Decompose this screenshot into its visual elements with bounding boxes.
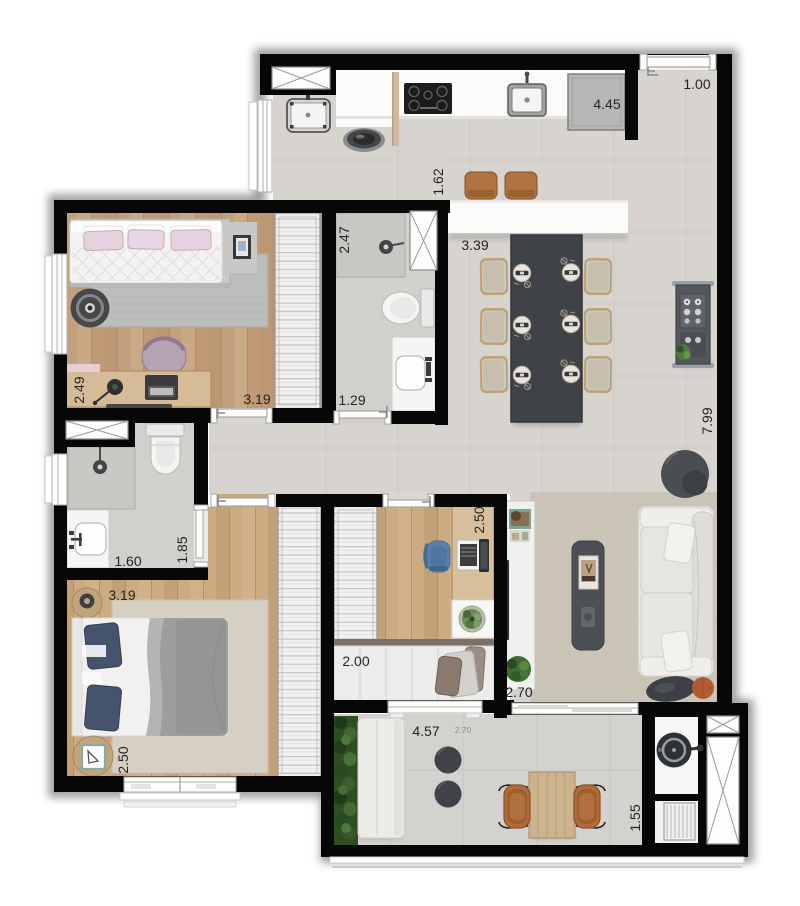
- svg-text:2.50: 2.50: [471, 506, 487, 533]
- svg-text:7.99: 7.99: [699, 407, 715, 434]
- svg-text:1.62: 1.62: [430, 168, 446, 195]
- svg-text:2.47: 2.47: [336, 226, 352, 253]
- svg-text:4.45: 4.45: [593, 96, 620, 112]
- svg-text:3.19: 3.19: [108, 587, 135, 603]
- svg-text:2.50: 2.50: [115, 746, 131, 773]
- svg-text:2.49: 2.49: [71, 376, 87, 403]
- svg-text:2.70: 2.70: [505, 684, 532, 700]
- svg-text:2.70: 2.70: [455, 725, 472, 735]
- svg-text:3.39: 3.39: [461, 237, 488, 253]
- svg-text:1.55: 1.55: [627, 804, 643, 831]
- svg-text:1.85: 1.85: [174, 536, 190, 563]
- svg-text:3.19: 3.19: [243, 391, 270, 407]
- svg-text:4.57: 4.57: [412, 723, 439, 739]
- svg-text:1.00: 1.00: [683, 76, 710, 92]
- svg-text:1.29: 1.29: [338, 392, 365, 408]
- svg-text:2.00: 2.00: [342, 653, 369, 669]
- svg-text:1.60: 1.60: [114, 553, 141, 569]
